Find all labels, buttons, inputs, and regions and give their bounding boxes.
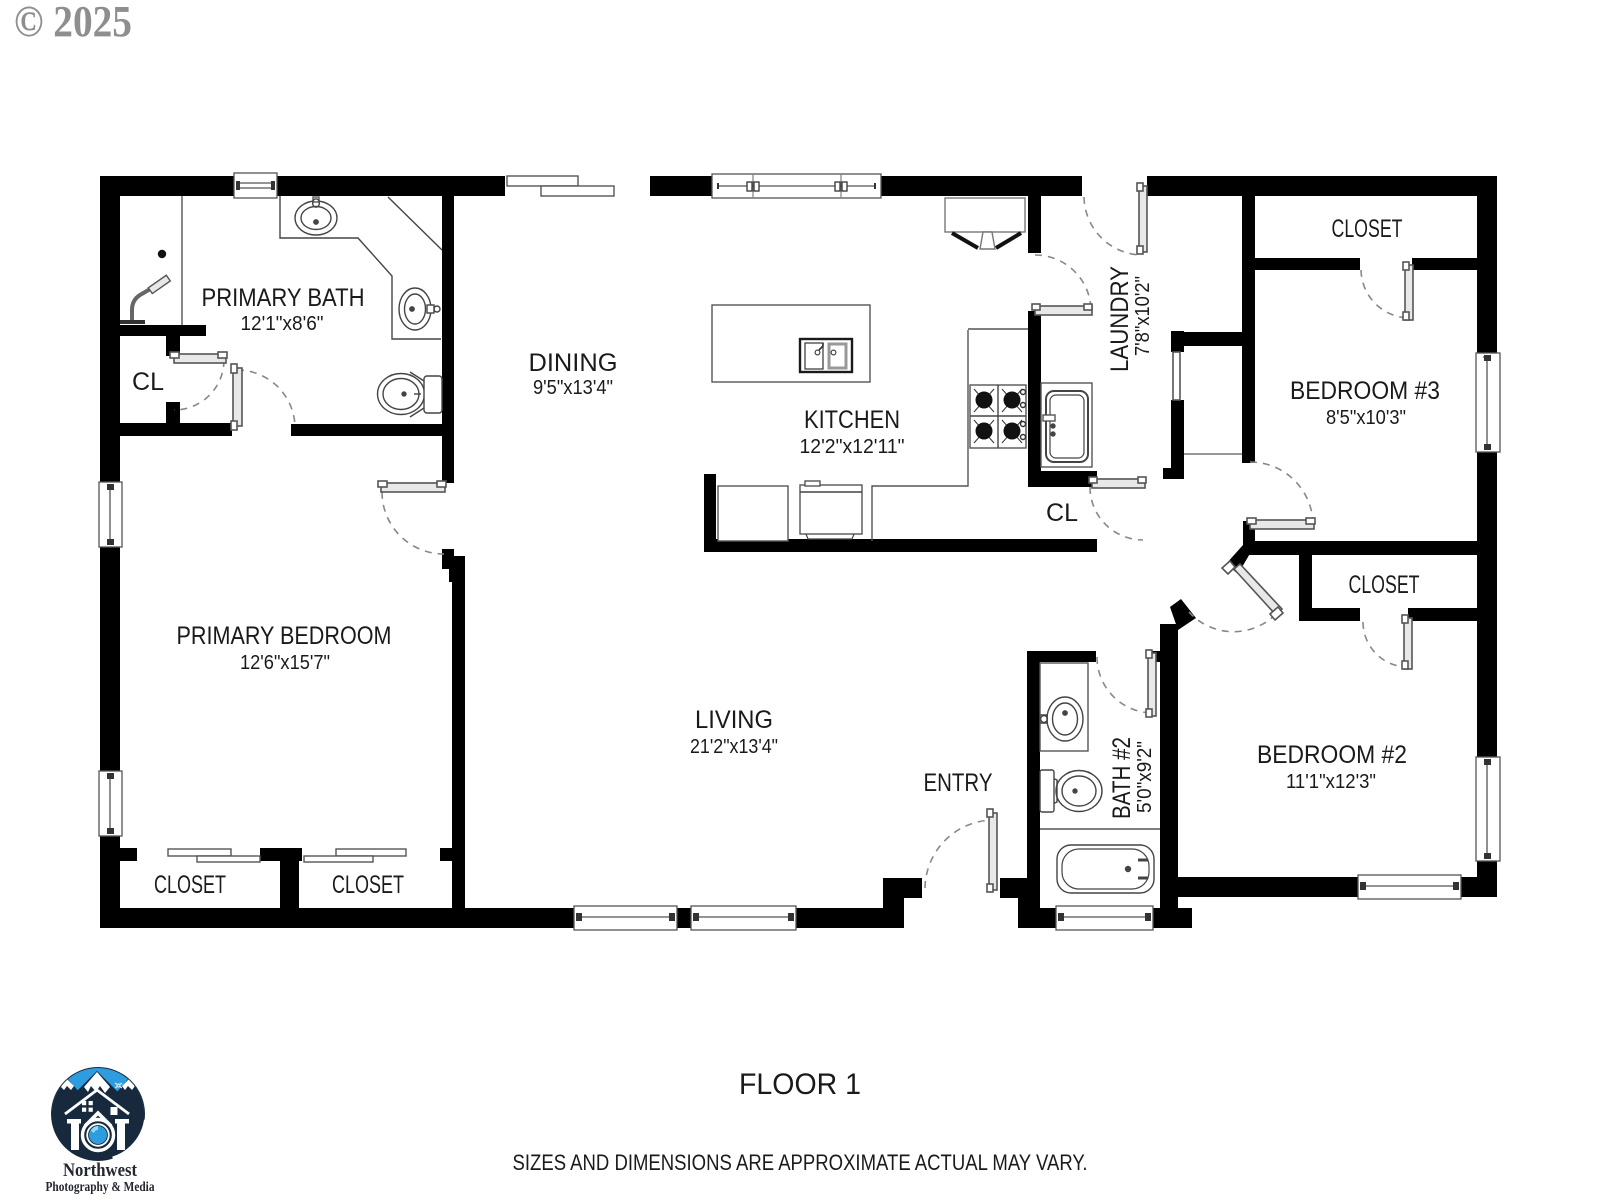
svg-text:5'0"x9'2": 5'0"x9'2" <box>1134 741 1156 813</box>
svg-text:LIVING: LIVING <box>695 706 773 734</box>
svg-text:12'6"x15'7": 12'6"x15'7" <box>240 652 330 674</box>
svg-text:CLOSET: CLOSET <box>154 871 226 899</box>
svg-text:Northwest: Northwest <box>63 1160 138 1181</box>
svg-text:CLOSET: CLOSET <box>332 871 404 899</box>
svg-text:LAUNDRY: LAUNDRY <box>1106 266 1134 372</box>
svg-text:Photography & Media: Photography & Media <box>46 1179 155 1194</box>
svg-text:BEDROOM #3: BEDROOM #3 <box>1290 377 1440 405</box>
svg-text:PRIMARY BEDROOM: PRIMARY BEDROOM <box>177 622 392 650</box>
svg-text:FLOOR 1: FLOOR 1 <box>739 1068 861 1101</box>
svg-text:9'5"x13'4": 9'5"x13'4" <box>533 377 613 399</box>
svg-text:7'8"x10'2": 7'8"x10'2" <box>1132 276 1154 356</box>
svg-text:CL: CL <box>132 368 164 396</box>
svg-text:21'2"x13'4": 21'2"x13'4" <box>690 736 778 758</box>
svg-text:8'5"x10'3": 8'5"x10'3" <box>1326 407 1406 429</box>
svg-text:CLOSET: CLOSET <box>1332 215 1403 243</box>
svg-text:12'2"x12'11": 12'2"x12'11" <box>800 436 905 458</box>
svg-text:SIZES AND DIMENSIONS ARE APPRO: SIZES AND DIMENSIONS ARE APPROXIMATE ACT… <box>513 1150 1088 1175</box>
svg-text:ENTRY: ENTRY <box>924 769 993 797</box>
svg-text:PRIMARY BATH: PRIMARY BATH <box>202 284 365 312</box>
svg-text:DINING: DINING <box>529 349 618 377</box>
svg-text:12'1"x8'6": 12'1"x8'6" <box>241 313 324 335</box>
svg-text:CLOSET: CLOSET <box>1349 571 1420 599</box>
svg-text:CL: CL <box>1046 499 1078 527</box>
svg-text:BATH #2: BATH #2 <box>1108 737 1136 819</box>
svg-text:11'1"x12'3": 11'1"x12'3" <box>1286 771 1376 793</box>
svg-text:© 2025: © 2025 <box>14 0 132 46</box>
svg-text:BEDROOM #2: BEDROOM #2 <box>1257 741 1407 769</box>
svg-text:KITCHEN: KITCHEN <box>804 406 900 434</box>
